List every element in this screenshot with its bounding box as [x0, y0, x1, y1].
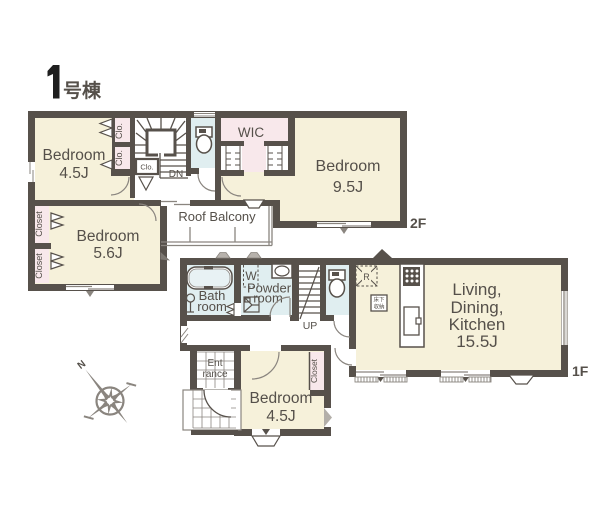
- svg-text:Bedroom: Bedroom: [77, 228, 140, 245]
- svg-text:5.6J: 5.6J: [93, 245, 122, 262]
- svg-text:room: room: [253, 291, 283, 306]
- svg-text:Closet: Closet: [34, 211, 44, 237]
- svg-text:1F: 1F: [572, 363, 589, 379]
- svg-text:4.5J: 4.5J: [266, 408, 295, 425]
- svg-text:Roof Balcony: Roof Balcony: [178, 209, 256, 224]
- svg-text:号棟: 号棟: [63, 79, 102, 102]
- svg-text:Bedroom: Bedroom: [250, 390, 313, 407]
- svg-text:4.5J: 4.5J: [59, 165, 88, 182]
- svg-text:UP: UP: [303, 320, 318, 332]
- svg-text:床下: 床下: [373, 296, 385, 304]
- svg-text:9.5J: 9.5J: [333, 179, 363, 196]
- svg-text:WIC: WIC: [238, 125, 264, 140]
- svg-text:Bedroom: Bedroom: [43, 147, 106, 164]
- svg-text:Clo.: Clo.: [114, 150, 124, 166]
- svg-text:Bedroom: Bedroom: [316, 158, 381, 175]
- svg-text:DN: DN: [169, 169, 183, 180]
- svg-text:収納: 収納: [373, 303, 385, 311]
- svg-text:Clo.: Clo.: [140, 163, 153, 172]
- svg-text:Clo.: Clo.: [114, 123, 124, 139]
- svg-text:15.5J: 15.5J: [456, 332, 498, 351]
- svg-text:R: R: [363, 272, 370, 282]
- svg-text:2F: 2F: [410, 215, 427, 231]
- svg-text:Ent: Ent: [207, 358, 222, 369]
- svg-text:Closet: Closet: [34, 253, 44, 279]
- svg-text:rance: rance: [202, 369, 227, 380]
- svg-text:room: room: [197, 299, 227, 314]
- svg-text:Closet: Closet: [309, 358, 319, 383]
- svg-text:Living,: Living,: [452, 280, 501, 299]
